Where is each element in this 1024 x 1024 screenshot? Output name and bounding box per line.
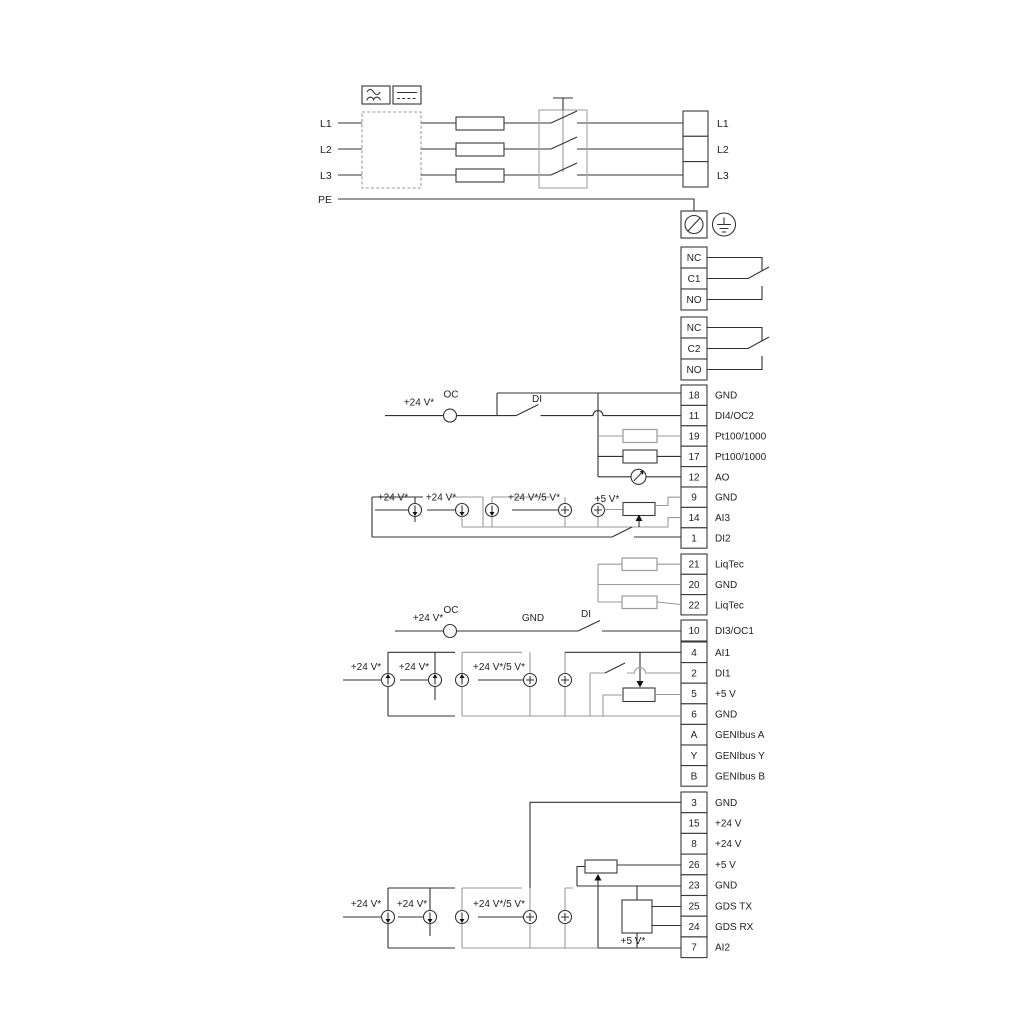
di3-switch-blade bbox=[578, 621, 600, 632]
v5-label: +5 V* bbox=[621, 936, 646, 947]
relay2-no-label: NO bbox=[687, 365, 702, 376]
terminal-num: 17 bbox=[688, 452, 700, 463]
terminal-num: 5 bbox=[691, 689, 697, 700]
relay1-c1-label: C1 bbox=[688, 274, 701, 285]
terminal-label: GDS TX bbox=[715, 901, 752, 912]
terminal-num: B bbox=[691, 771, 698, 782]
wire-segment bbox=[707, 258, 762, 272]
terminal-label-l1: L1 bbox=[717, 118, 729, 130]
oc-label: OC bbox=[444, 390, 459, 401]
terminal-label: GDS RX bbox=[715, 922, 754, 933]
oc-open-collector-icon bbox=[444, 625, 457, 638]
ai1-supply-group: +24 V* +24 V* +24 V*/5 V* bbox=[343, 652, 681, 716]
io-mid-section: 10 DI3/OC1 4 AI1 2 DI1 5 +5 V 6 GND A GE… bbox=[343, 605, 765, 786]
terminal-label: Pt100/1000 bbox=[715, 452, 767, 463]
di2-switch-blade bbox=[612, 527, 632, 537]
v24-label: +24 V* bbox=[397, 899, 427, 910]
wire-segment bbox=[388, 888, 455, 948]
liqtec-sensor-1 bbox=[622, 558, 657, 571]
relay1-no-label: NO bbox=[687, 295, 702, 306]
terminal-num: 23 bbox=[688, 881, 700, 892]
terminal-label: GENIbus A bbox=[715, 730, 765, 741]
dc-symbol-box bbox=[393, 86, 421, 104]
terminal-num: 1 bbox=[691, 534, 697, 545]
wire-segment bbox=[707, 286, 762, 300]
io-bottom-section: 3 GND 15 +24 V 8 +24 V 26 +5 V 23 GND 25… bbox=[343, 792, 754, 958]
terminal-cell-l3 bbox=[683, 162, 708, 187]
input-label-l3: L3 bbox=[320, 170, 332, 182]
filter-dashed-box bbox=[362, 112, 421, 188]
terminal-num: 10 bbox=[688, 626, 700, 637]
terminal-label: Pt100/1000 bbox=[715, 432, 767, 443]
ac-humps-icon bbox=[367, 97, 380, 100]
wire-segment bbox=[530, 802, 681, 888]
terminal-label: GND bbox=[715, 798, 737, 809]
terminal-label: GND bbox=[715, 391, 737, 402]
terminal-label: LiqTec bbox=[715, 560, 744, 571]
v5-label: +5 V* bbox=[595, 494, 620, 505]
terminal-num: 15 bbox=[688, 819, 700, 830]
v24-label: +24 V* bbox=[404, 398, 434, 409]
fuse-l1 bbox=[456, 117, 504, 130]
v24-5-label: +24 V*/5 V* bbox=[473, 662, 525, 673]
liqtec-section: 21 LiqTec 20 GND 22 LiqTec bbox=[598, 554, 744, 615]
terminal-num: 7 bbox=[691, 943, 697, 954]
input-label-l1: L1 bbox=[320, 118, 332, 130]
terminal-num: A bbox=[691, 730, 698, 741]
v24-label: +24 V* bbox=[378, 493, 408, 504]
wire-segment bbox=[707, 328, 762, 342]
potentiometer bbox=[623, 688, 655, 702]
terminal-num: 4 bbox=[691, 648, 697, 659]
oc-label: OC bbox=[444, 605, 459, 616]
ac-wave-icon bbox=[367, 89, 380, 94]
terminal-cell-l2 bbox=[683, 136, 708, 161]
wire-segment bbox=[655, 497, 681, 505]
wire-segment bbox=[497, 393, 681, 416]
liqtec-sensor-2 bbox=[622, 596, 657, 609]
terminal-label: +24 V bbox=[715, 819, 742, 830]
terminal-num: 9 bbox=[691, 493, 697, 504]
input-label-pe: PE bbox=[318, 194, 332, 206]
terminal-num: 2 bbox=[691, 668, 697, 679]
relay1-contact-blade bbox=[748, 267, 769, 279]
pe-wire bbox=[338, 199, 694, 211]
terminal-num: 21 bbox=[688, 560, 700, 571]
relay2-c2-label: C2 bbox=[688, 344, 701, 355]
terminal-label: AI3 bbox=[715, 513, 730, 524]
input-label-l2: L2 bbox=[320, 144, 332, 156]
fuse-l3 bbox=[456, 169, 504, 182]
v24-label: +24 V* bbox=[351, 662, 381, 673]
terminal-label: GND bbox=[715, 493, 737, 504]
gnd-label: GND bbox=[522, 613, 544, 624]
io-top-section: 18 GND 11 DI4/OC2 19 Pt100/1000 17 Pt100… bbox=[372, 385, 767, 548]
pt100-sensor-1 bbox=[623, 430, 657, 443]
terminal-label-l3: L3 bbox=[717, 170, 729, 182]
wire-segment bbox=[707, 356, 762, 370]
v24-5-label: +24 V*/5 V* bbox=[473, 899, 525, 910]
terminal-label: LiqTec bbox=[715, 600, 744, 611]
wire-segment bbox=[541, 411, 682, 416]
terminal-label: DI3/OC1 bbox=[715, 626, 754, 637]
relay1-section: NC C1 NO bbox=[681, 247, 769, 310]
relay1-nc-label: NC bbox=[687, 253, 701, 264]
terminal-label: GENIbus B bbox=[715, 771, 765, 782]
terminal-cell-l1 bbox=[683, 111, 708, 136]
v24-label: +24 V* bbox=[413, 613, 443, 624]
v24-label: +24 V* bbox=[351, 899, 381, 910]
wiper-arrowhead bbox=[637, 681, 644, 688]
terminal-label: GENIbus Y bbox=[715, 751, 765, 762]
relay2-nc-label: NC bbox=[687, 323, 701, 334]
v24-label: +24 V* bbox=[426, 493, 456, 504]
terminal-num: Y bbox=[691, 751, 698, 762]
pt100-sensor-2 bbox=[623, 450, 657, 463]
switch-blade-l1 bbox=[551, 111, 577, 123]
wiper-arrowhead bbox=[595, 874, 602, 881]
terminal-num: 14 bbox=[688, 513, 700, 524]
switch-handle bbox=[553, 98, 573, 110]
relay2-contact-blade bbox=[748, 337, 769, 349]
wire-segment bbox=[462, 888, 522, 948]
terminal-label: DI1 bbox=[715, 668, 731, 679]
terminal-num: 19 bbox=[688, 432, 700, 443]
oc-open-collector-icon bbox=[444, 409, 457, 422]
terminal-num: 12 bbox=[688, 472, 700, 483]
relay2-section: NC C2 NO bbox=[681, 317, 769, 380]
potentiometer bbox=[585, 860, 617, 873]
power-section: L1 L2 L3 PE L1 L2 L3 bbox=[318, 86, 736, 238]
fuse-l2 bbox=[456, 143, 504, 156]
gds-sensor-box bbox=[622, 900, 652, 933]
potentiometer bbox=[623, 503, 655, 516]
v24-5-label: +24 V*/5 V* bbox=[508, 493, 560, 504]
wire-segment bbox=[639, 518, 681, 527]
terminal-label: AI2 bbox=[715, 943, 730, 954]
v24-label: +24 V* bbox=[399, 662, 429, 673]
terminal-num: 3 bbox=[691, 798, 697, 809]
switch-blade-l3 bbox=[551, 163, 577, 175]
di1-switch-blade bbox=[605, 663, 625, 673]
terminal-num: 24 bbox=[688, 922, 700, 933]
terminal-num: 26 bbox=[688, 860, 700, 871]
terminal-num: 6 bbox=[691, 710, 697, 721]
terminal-num: 11 bbox=[689, 411, 700, 422]
terminal-label: DI2 bbox=[715, 534, 731, 545]
terminal-label: +5 V bbox=[715, 860, 736, 871]
terminal-label: GND bbox=[715, 881, 737, 892]
terminal-label: AI1 bbox=[715, 648, 730, 659]
terminal-num: 20 bbox=[688, 580, 700, 591]
switch-blade-l2 bbox=[551, 137, 577, 149]
di4-switch-blade bbox=[516, 405, 539, 416]
di-label: DI bbox=[581, 609, 591, 620]
ai2-supply-group: +24 V* +24 V* +24 V*/5 V* bbox=[343, 888, 573, 948]
terminal-label: +24 V bbox=[715, 839, 742, 850]
wiring-diagram: L1 L2 L3 PE L1 L2 L3 bbox=[0, 0, 1024, 1024]
terminal-num: 25 bbox=[688, 901, 700, 912]
terminal-label-l2: L2 bbox=[717, 144, 729, 156]
terminal-label: GND bbox=[715, 710, 737, 721]
terminal-label: DI4/OC2 bbox=[715, 411, 754, 422]
di-label: DI bbox=[532, 394, 542, 405]
terminal-label: GND bbox=[715, 580, 737, 591]
terminal-num: 18 bbox=[688, 391, 700, 402]
terminal-num: 22 bbox=[688, 600, 700, 611]
terminal-label: +5 V bbox=[715, 689, 736, 700]
terminal-label: AO bbox=[715, 472, 730, 483]
ai3-supply-group: +24 V* +24 V* +24 V*/5 V* +5 V* bbox=[372, 493, 681, 538]
terminal-num: 8 bbox=[691, 839, 697, 850]
